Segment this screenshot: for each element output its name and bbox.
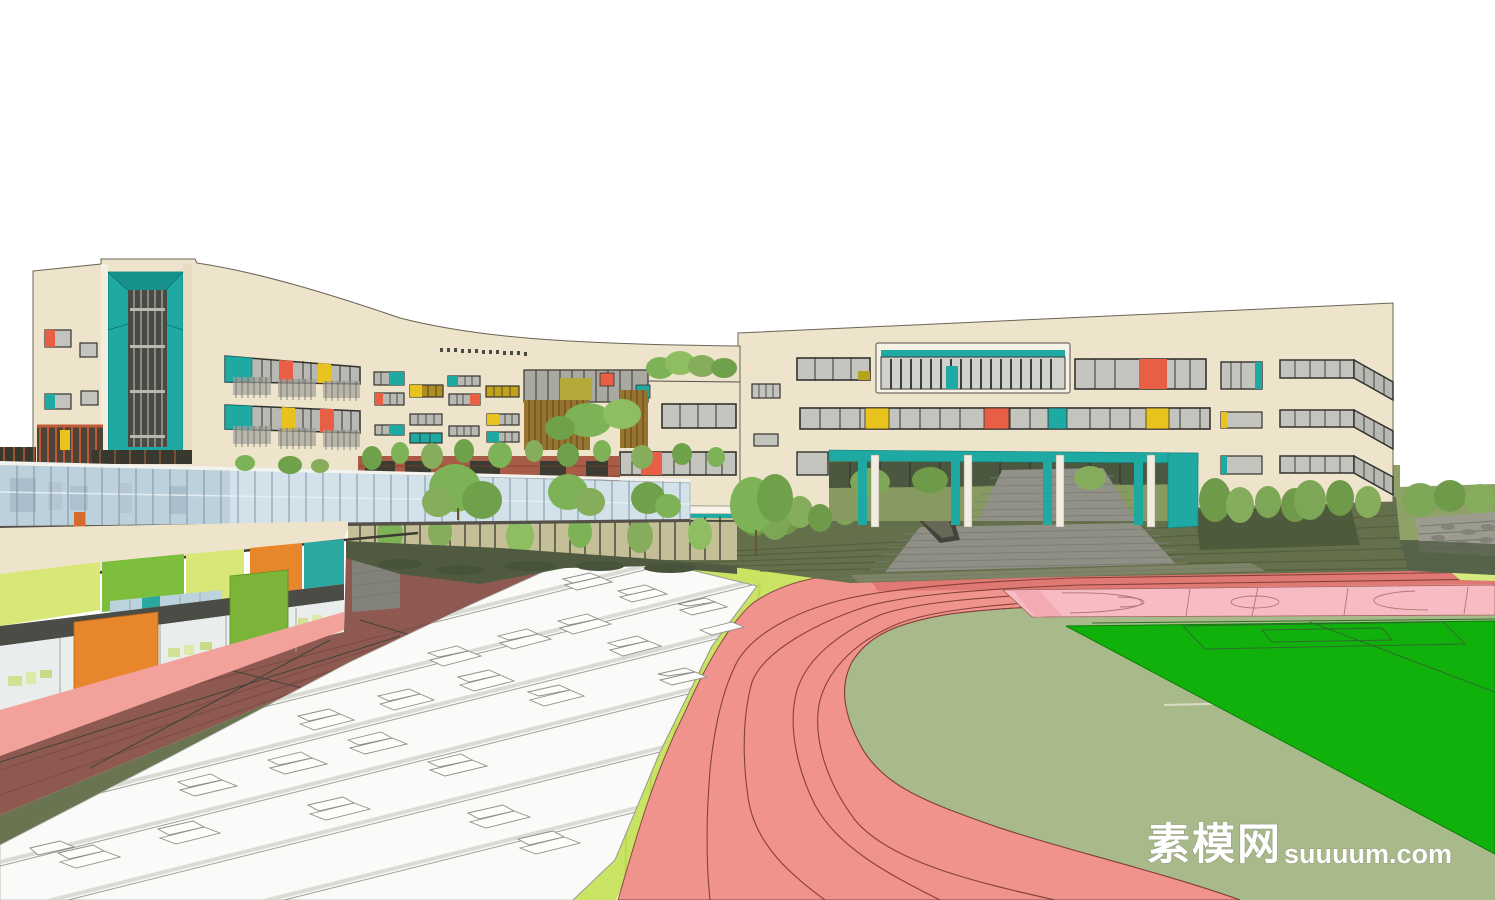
svg-text:素模网: 素模网 bbox=[1147, 821, 1282, 869]
svg-text:suuuum.com: suuuum.com bbox=[1284, 839, 1452, 869]
